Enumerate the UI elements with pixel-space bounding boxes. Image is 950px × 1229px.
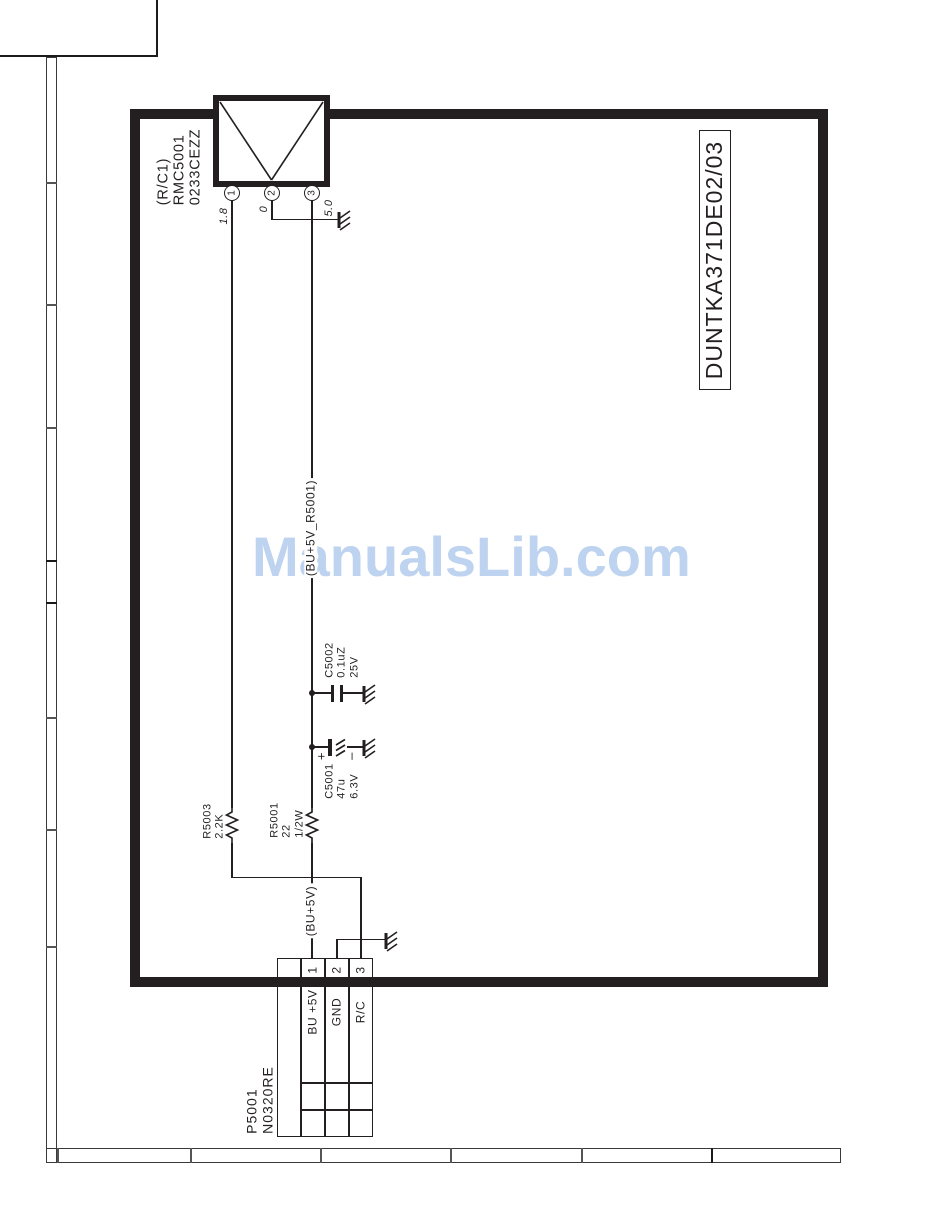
bottom-ruler-tick bbox=[711, 1148, 713, 1163]
pin-number-1: 1 bbox=[226, 190, 237, 196]
connector-pin-label-bu5v: BU +5V bbox=[306, 989, 319, 1034]
left-ruler-tick bbox=[46, 182, 57, 184]
left-ruler-tick bbox=[46, 717, 57, 719]
corner-frame bbox=[0, 0, 158, 57]
left-ruler-tick bbox=[46, 829, 57, 831]
left-fold-ruler bbox=[46, 57, 57, 1163]
left-ruler-tick bbox=[46, 946, 57, 948]
connector-row-line bbox=[301, 1109, 373, 1111]
receiver-ref-label: (R/C1) RMC5001 0233CEZZ bbox=[156, 129, 205, 206]
pin-voltage-2: 0 bbox=[258, 206, 270, 213]
left-ruler-tick bbox=[46, 560, 57, 562]
connector-row-line bbox=[301, 1082, 373, 1084]
bottom-ruler-tick bbox=[190, 1148, 192, 1163]
bottom-ruler-tick bbox=[320, 1148, 322, 1163]
connector-pin-label-gnd: GND bbox=[330, 998, 343, 1026]
pin-voltage-3: 5.0 bbox=[323, 199, 335, 216]
board-code-text: DUNTKA371DE02/03 bbox=[702, 141, 728, 379]
ir-sensor-icon bbox=[219, 101, 324, 181]
schematic-page: ManualsLib.com 1 2 3 BU +5V GND R/C P500… bbox=[0, 0, 950, 1229]
connector-ref-label: P5001 N0320RE bbox=[244, 1066, 275, 1134]
left-ruler-tick bbox=[46, 602, 57, 604]
left-ruler-tick bbox=[46, 304, 57, 306]
pin-number-2: 2 bbox=[266, 190, 277, 196]
pin-voltage-1: 1.8 bbox=[218, 207, 230, 224]
connector-pin-label-rc: R/C bbox=[354, 1001, 367, 1023]
pin-number-3: 3 bbox=[306, 190, 317, 196]
bottom-ruler-tick bbox=[581, 1148, 583, 1163]
left-ruler-tick bbox=[46, 427, 57, 429]
bottom-fold-ruler bbox=[46, 1148, 841, 1163]
bottom-ruler-tick bbox=[57, 1148, 59, 1163]
bottom-ruler-tick bbox=[450, 1148, 452, 1163]
